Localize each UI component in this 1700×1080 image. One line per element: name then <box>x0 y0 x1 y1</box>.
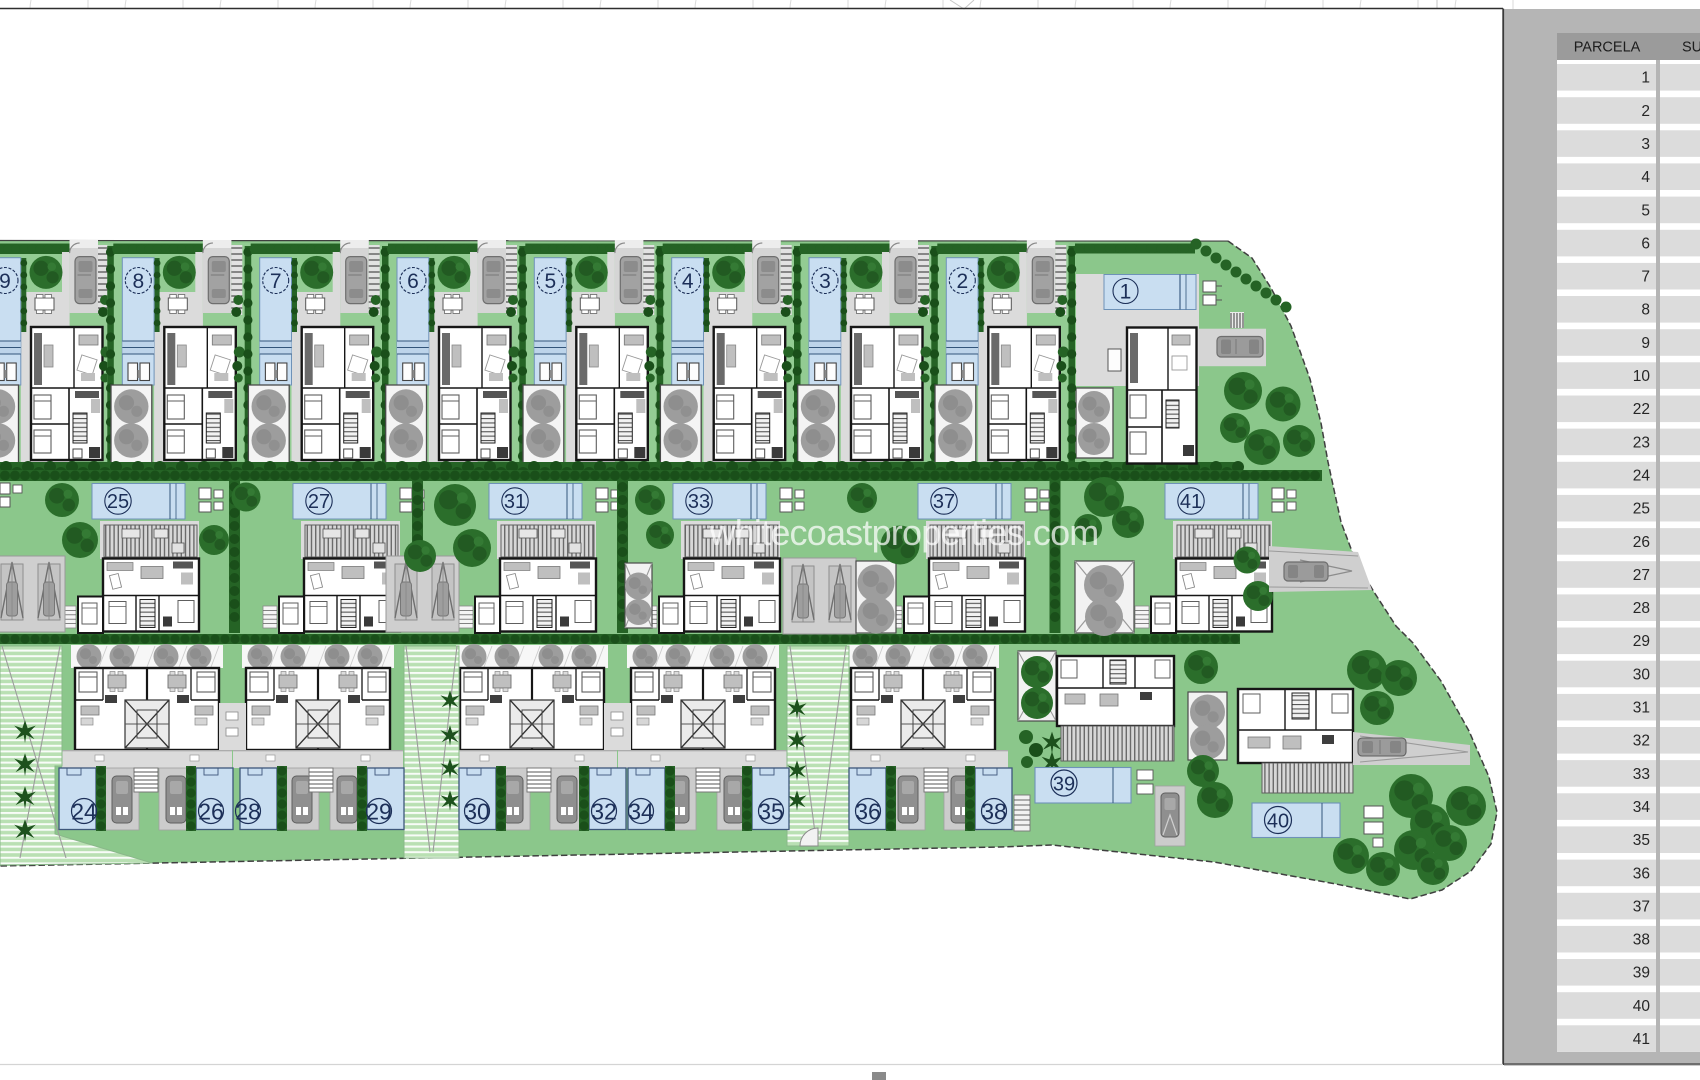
svg-text:31: 31 <box>504 491 526 513</box>
svg-text:3: 3 <box>1641 136 1650 153</box>
svg-text:SU: SU <box>1682 40 1700 56</box>
svg-text:40: 40 <box>1267 811 1289 833</box>
svg-text:33: 33 <box>1633 766 1650 783</box>
svg-text:1: 1 <box>1641 70 1650 87</box>
svg-text:36: 36 <box>1633 865 1650 882</box>
svg-text:10: 10 <box>1633 368 1651 385</box>
svg-text:39: 39 <box>1633 965 1650 982</box>
svg-text:38: 38 <box>1633 932 1650 949</box>
svg-text:39: 39 <box>1053 774 1075 796</box>
svg-text:26: 26 <box>198 799 224 825</box>
svg-text:30: 30 <box>464 799 490 825</box>
svg-text:36: 36 <box>855 799 881 825</box>
svg-text:7: 7 <box>270 270 282 293</box>
svg-text:35: 35 <box>1633 832 1650 849</box>
svg-text:32: 32 <box>1633 733 1650 750</box>
svg-text:31: 31 <box>1633 700 1650 717</box>
svg-text:28: 28 <box>1633 600 1650 617</box>
svg-text:5: 5 <box>1641 202 1650 219</box>
svg-text:35: 35 <box>758 799 784 825</box>
svg-text:25: 25 <box>107 491 129 513</box>
svg-text:25: 25 <box>1633 501 1650 518</box>
svg-text:37: 37 <box>1633 898 1650 915</box>
svg-text:38: 38 <box>981 799 1007 825</box>
svg-text:34: 34 <box>628 799 654 825</box>
svg-text:3: 3 <box>819 270 831 293</box>
svg-text:8: 8 <box>132 270 144 293</box>
svg-text:6: 6 <box>407 270 419 293</box>
svg-text:32: 32 <box>591 799 617 825</box>
svg-text:33: 33 <box>688 491 710 513</box>
svg-text:5: 5 <box>544 270 556 293</box>
svg-text:PARCELA: PARCELA <box>1574 40 1641 56</box>
svg-text:34: 34 <box>1633 799 1651 816</box>
svg-text:6: 6 <box>1641 236 1650 253</box>
svg-text:40: 40 <box>1633 998 1651 1015</box>
svg-text:27: 27 <box>308 491 330 513</box>
svg-text:41: 41 <box>1180 491 1202 513</box>
svg-text:4: 4 <box>682 270 694 293</box>
svg-text:7: 7 <box>1641 269 1650 286</box>
svg-text:41: 41 <box>1633 1031 1650 1048</box>
svg-text:28: 28 <box>235 799 261 825</box>
svg-text:23: 23 <box>1633 434 1650 451</box>
svg-text:8: 8 <box>1641 302 1650 319</box>
svg-text:2: 2 <box>956 270 968 293</box>
svg-text:2: 2 <box>1641 103 1650 120</box>
svg-text:30: 30 <box>1633 666 1651 683</box>
svg-text:22: 22 <box>1633 401 1650 418</box>
svg-text:whitecoastproperties.com: whitecoastproperties.com <box>709 512 1099 553</box>
svg-text:24: 24 <box>71 799 97 825</box>
svg-text:27: 27 <box>1633 567 1650 584</box>
svg-text:37: 37 <box>933 491 955 513</box>
svg-text:9: 9 <box>1641 335 1650 352</box>
svg-text:29: 29 <box>1633 633 1650 650</box>
svg-text:26: 26 <box>1633 534 1650 551</box>
svg-text:24: 24 <box>1633 468 1651 485</box>
svg-text:4: 4 <box>1641 169 1650 186</box>
svg-text:29: 29 <box>366 799 392 825</box>
svg-text:1: 1 <box>1120 281 1132 304</box>
svg-text:9: 9 <box>0 270 11 293</box>
